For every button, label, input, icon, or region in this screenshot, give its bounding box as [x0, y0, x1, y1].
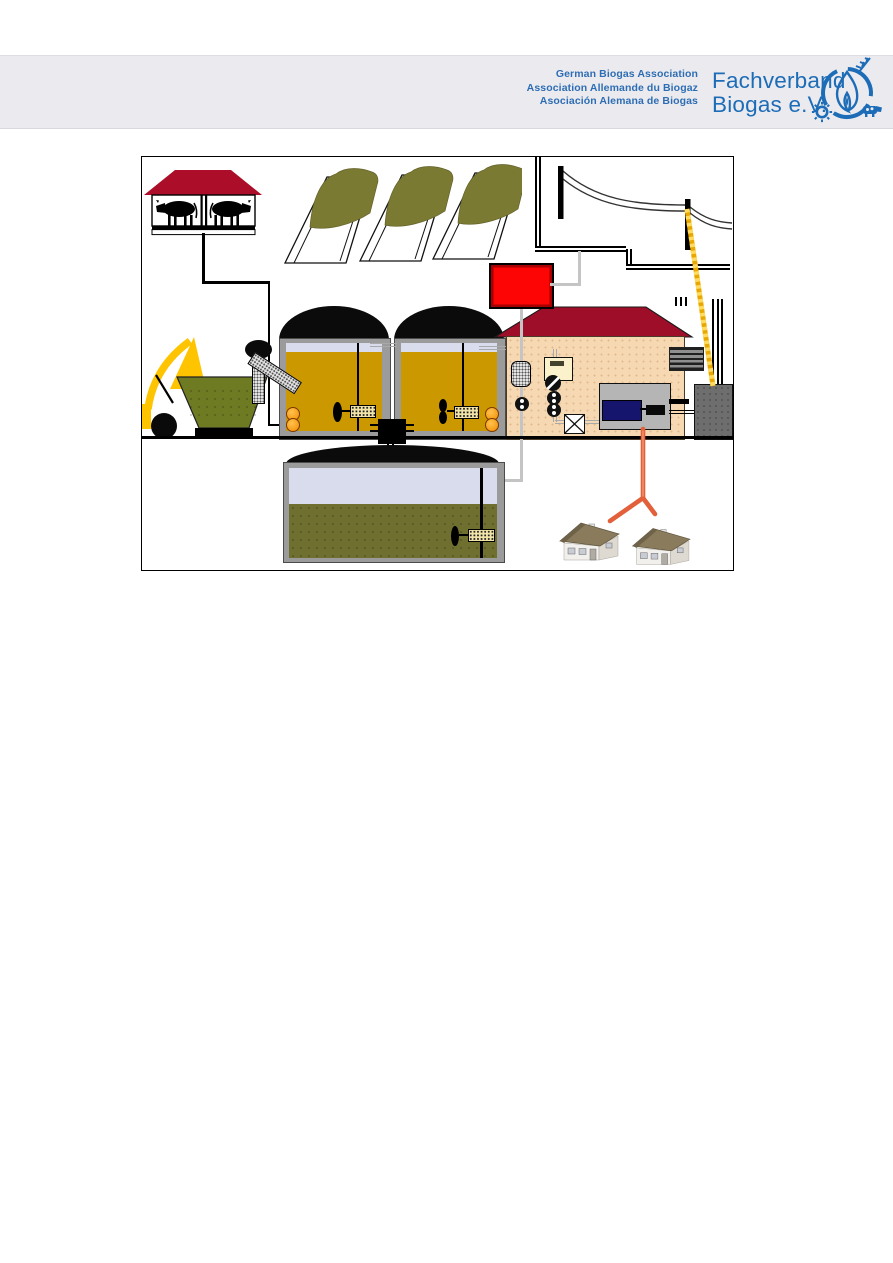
inset-frame-line [626, 264, 730, 270]
house [633, 529, 690, 565]
gas-pipe [583, 420, 600, 424]
inlet-port [485, 418, 499, 432]
gas-pipe-flare-branch [550, 283, 581, 286]
exhaust-stack-line [712, 299, 714, 385]
cow-icon [863, 106, 882, 117]
inlet-port [286, 418, 300, 432]
fermenter-2-gas-dome [394, 306, 504, 340]
heat-pipe [610, 429, 655, 521]
fermenter-1-gas-dome [279, 306, 389, 340]
gear-icon [812, 102, 832, 122]
gas-pipe [370, 343, 397, 347]
chp-generator [646, 405, 665, 415]
heated-houses-icon [557, 513, 697, 567]
gas-pipe-flare-branch [578, 251, 581, 285]
storage-tank-headspace [289, 468, 497, 504]
central-pump [378, 419, 406, 444]
fachverband-biogas-logo-icon [810, 56, 886, 126]
condensate-trap [511, 361, 531, 387]
association-line-en: German Biogas Association [420, 68, 698, 82]
house [560, 523, 619, 560]
association-line-es: Asociación Alemana de Biogas [420, 95, 698, 109]
association-line-fr: Association Allemande du Biogaz [420, 82, 698, 96]
gas-pipe-flare [520, 304, 523, 482]
biogas-plant-diagram [141, 156, 734, 571]
silage-clamp [285, 169, 378, 264]
manure-pipe [202, 281, 270, 284]
ground-line [142, 436, 733, 439]
power-line-icon [537, 161, 732, 253]
exhaust-stack-line [721, 299, 723, 385]
gas-meter-display [550, 361, 564, 366]
pressure-gauge [545, 375, 561, 391]
power-cable-link [669, 410, 694, 414]
gas-cooler [564, 414, 585, 434]
emergency-cooler [669, 347, 704, 371]
manure-pipe [202, 233, 205, 283]
gas-valve [515, 397, 529, 411]
chp-engine [602, 400, 642, 421]
agitator-motor [468, 529, 495, 542]
exhaust-stack-line [717, 299, 719, 385]
document-page: German Biogas Association Association Al… [0, 0, 893, 1263]
barn-roof [144, 170, 262, 195]
chp-unit [599, 383, 671, 430]
gas-valve [547, 403, 561, 417]
agitator-shaft [447, 410, 454, 412]
fermenter-2-substrate [401, 352, 497, 431]
agitator-shaft [459, 534, 468, 536]
utility-pole-icon [558, 166, 564, 219]
power-cable-link [669, 399, 689, 404]
agitator-motor [454, 406, 479, 419]
utility-pole-icon [685, 199, 691, 250]
agitator-shaft [341, 410, 350, 412]
association-names: German Biogas Association Association Al… [420, 68, 698, 109]
silage-clamps-icon [282, 161, 522, 265]
agitator-propeller [439, 411, 447, 424]
storage-tank-digestate [289, 504, 497, 558]
cow-barn-icon [144, 167, 264, 237]
gas-flare [489, 263, 554, 309]
agitator-propeller [451, 526, 459, 546]
transformer [694, 384, 733, 440]
storage-tank-dip-pipe [480, 468, 483, 558]
agitator-motor [350, 405, 376, 418]
